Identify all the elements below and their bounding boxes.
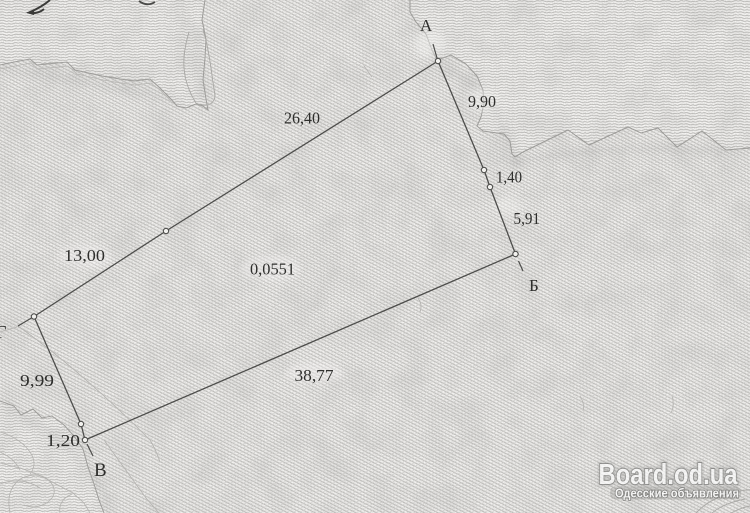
svg-text:9,99: 9,99 — [20, 371, 54, 390]
svg-text:Одесские объявления: Одесские объявления — [615, 486, 739, 501]
svg-text:9,90: 9,90 — [468, 92, 496, 111]
svg-text:0,0551: 0,0551 — [250, 260, 295, 279]
svg-text:Б: Б — [529, 276, 539, 295]
svg-text:13,00: 13,00 — [64, 246, 105, 265]
svg-text:5,91: 5,91 — [514, 209, 541, 228]
svg-text:А: А — [420, 16, 433, 35]
svg-text:1,40: 1,40 — [496, 168, 522, 187]
svg-text:Г: Г — [0, 322, 6, 342]
svg-text:38,77: 38,77 — [295, 366, 334, 385]
svg-text:В: В — [94, 460, 107, 481]
svg-text:26,40: 26,40 — [284, 109, 320, 128]
svg-text:1,20: 1,20 — [46, 431, 80, 450]
